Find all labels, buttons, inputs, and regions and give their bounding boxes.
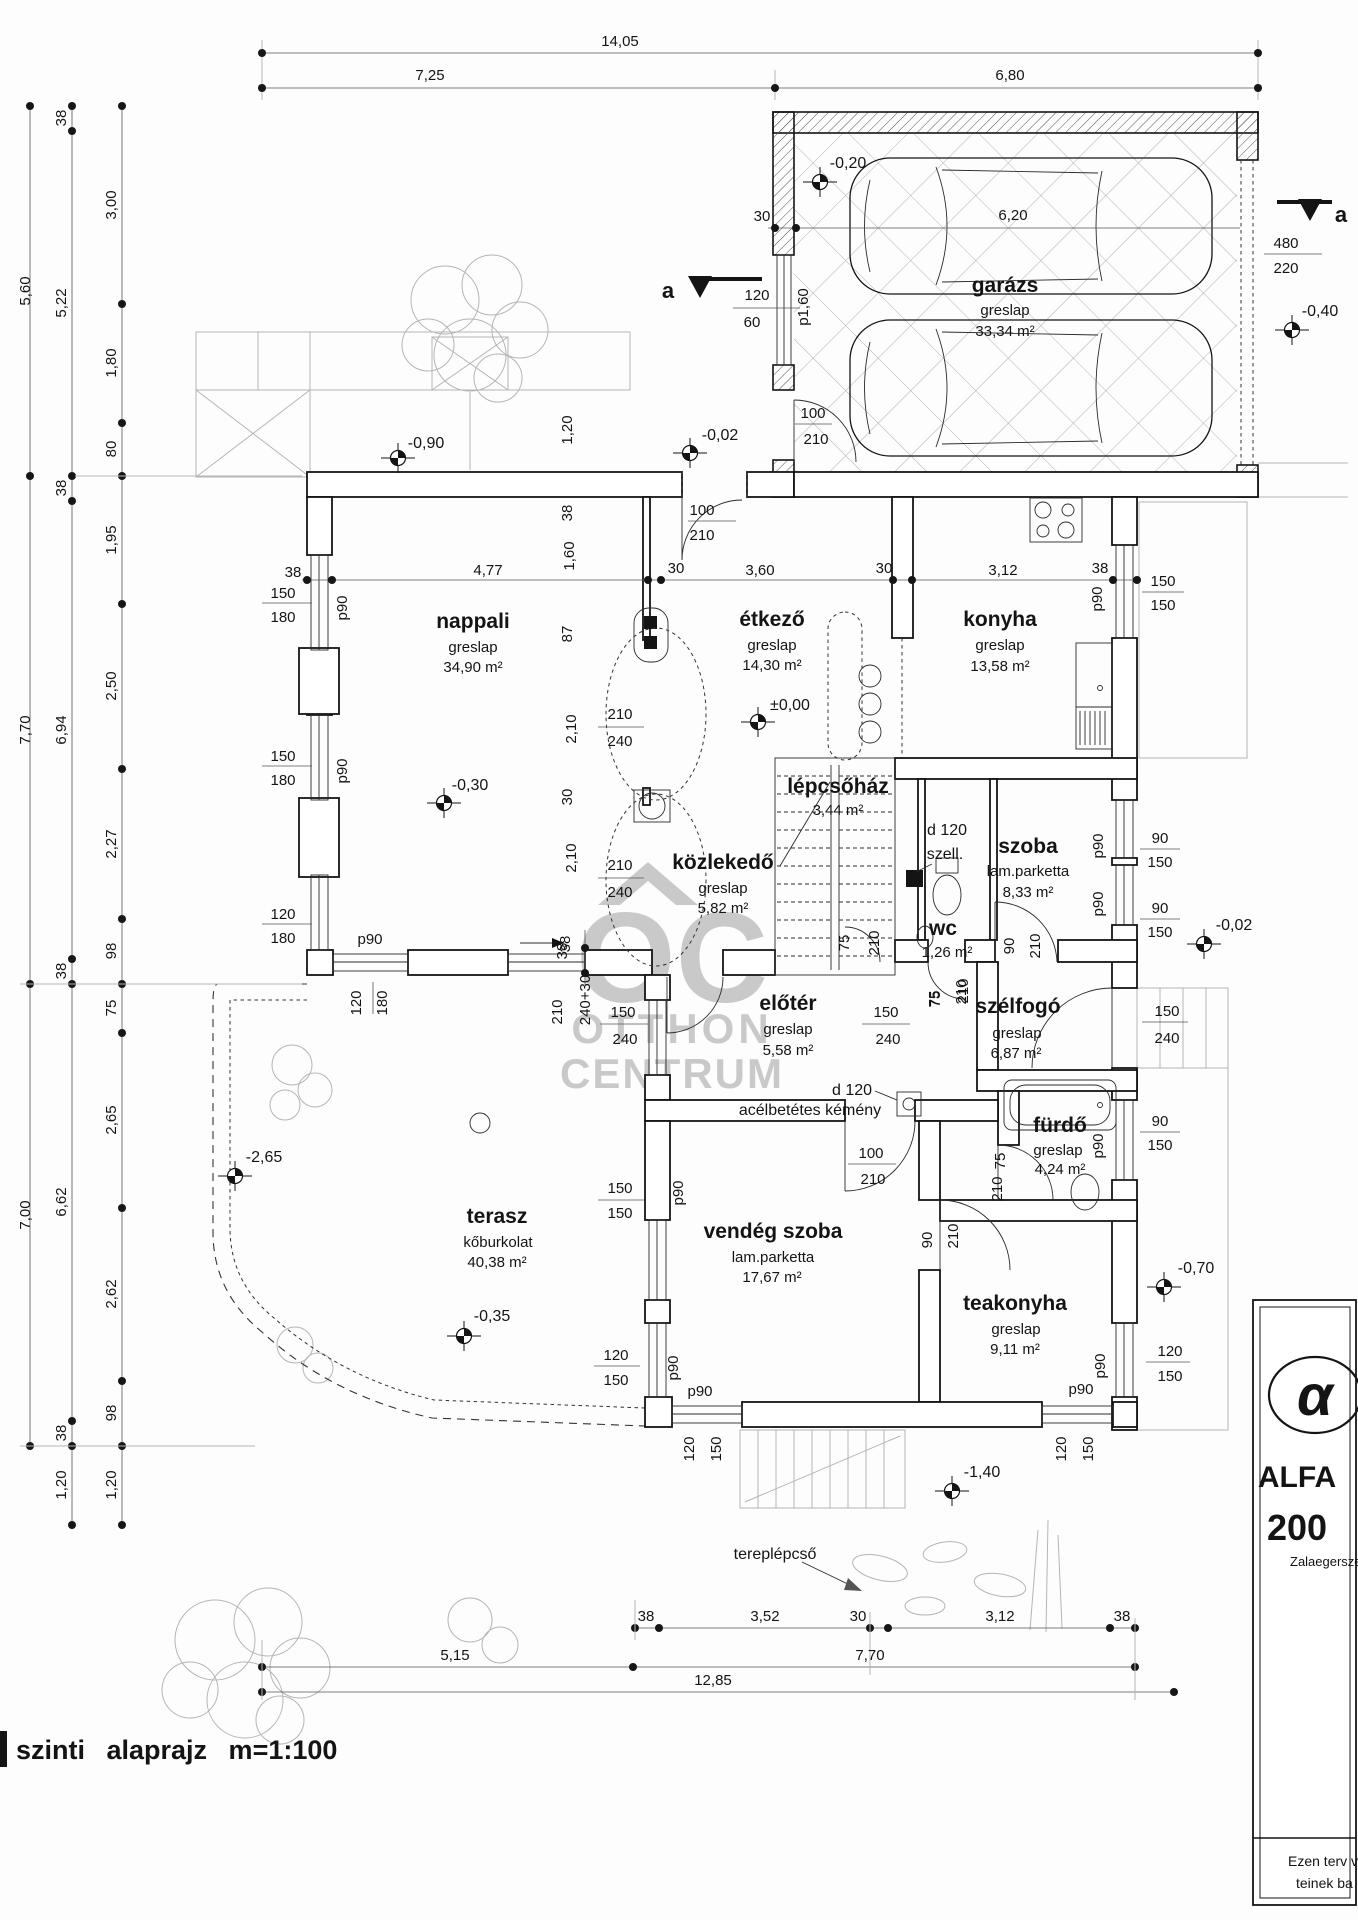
dim-label: 90 — [1001, 938, 1018, 955]
room-name: wc — [928, 917, 957, 940]
dim-label: 75 — [927, 991, 944, 1008]
page-title: szinti alaprajz m=1:100 — [0, 1731, 337, 1767]
dim-label: 4,77 — [473, 562, 502, 579]
section-marker-icon — [1298, 199, 1322, 221]
exterior-steps — [740, 1430, 905, 1508]
dim-label: 5,15 — [440, 1647, 469, 1664]
dim-label: 210 — [689, 527, 714, 544]
dim-label: 14,05 — [601, 33, 639, 50]
level-label: -0,70 — [1178, 1260, 1215, 1277]
level-label: -0,02 — [1216, 917, 1253, 934]
dim-label: 100 — [800, 405, 825, 422]
level-label: -0,40 — [1302, 303, 1339, 320]
dim-label: 2,27 — [103, 829, 120, 858]
dim-label: p90 — [670, 1180, 687, 1205]
dim-label: 30 — [754, 208, 771, 225]
dim-label: 75 — [103, 1000, 120, 1017]
room-area: 6,87 m² — [991, 1045, 1042, 1062]
dim-label: 150 — [607, 1180, 632, 1197]
dim-label: 1,20 — [103, 1470, 120, 1499]
room-floor: lam.parketta — [732, 1249, 815, 1266]
annotation: szell. — [927, 846, 963, 863]
section-label: a — [1335, 202, 1348, 227]
dim-label: 150 — [270, 585, 295, 602]
dim-label: 100 — [858, 1145, 883, 1162]
dim-label: 7,00 — [17, 1200, 34, 1229]
dim-label: 38 — [53, 963, 70, 980]
room-name: teakonyha — [963, 1292, 1067, 1315]
dim-label: 150 — [610, 1004, 635, 1021]
dim-label: 38 — [53, 1425, 70, 1442]
dim-label: 6,94 — [53, 715, 70, 744]
plan-title: szinti alaprajz m=1:100 — [16, 1735, 337, 1765]
room-floor: kőburkolat — [463, 1234, 533, 1251]
room-area: 4,24 m² — [1035, 1161, 1086, 1178]
dim-label: 150 — [1147, 924, 1172, 941]
company-city: Zalaegersze — [1290, 1554, 1358, 1569]
sink-icon — [1076, 643, 1112, 749]
dim-label: 240 — [1154, 1030, 1179, 1047]
annotation: acélbetétes kémény — [739, 1102, 881, 1119]
dim-label: p90 — [1089, 586, 1106, 611]
room-name: szoba — [998, 835, 1058, 858]
dim-label: 210 — [549, 999, 566, 1024]
note-line: Ezen terv v — [1288, 1853, 1358, 1869]
dim-label: 90 — [919, 1232, 936, 1249]
dim-label: 1,80 — [103, 348, 120, 377]
dim-label: 120 — [348, 990, 365, 1015]
room-area: 5,58 m² — [763, 1042, 814, 1059]
room-floor: greslap — [698, 880, 747, 897]
dim-label: 1,20 — [53, 1470, 70, 1499]
dim-label: 240 — [607, 884, 632, 901]
dim-label: 150 — [1150, 573, 1175, 590]
room-area: 8,33 m² — [1003, 884, 1054, 901]
room-name: konyha — [963, 608, 1037, 631]
dim-label: 6,62 — [53, 1187, 70, 1216]
dim-label: 87 — [559, 626, 576, 643]
dim-label: 1,60 — [561, 541, 578, 570]
bush-terasz — [270, 1045, 333, 1383]
level-label: ±0,00 — [770, 697, 810, 714]
room-area: 34,90 m² — [443, 659, 502, 676]
dim-label: 210 — [607, 857, 632, 874]
room-area: 3,44 m² — [813, 802, 864, 819]
dim-label: 38 — [1092, 560, 1109, 577]
dim-label: 210 — [860, 1171, 885, 1188]
room-name: fürdő — [1033, 1114, 1087, 1137]
room-name: garázs — [972, 274, 1039, 297]
dim-label: 150 — [603, 1372, 628, 1389]
dim-label: 38 — [53, 110, 70, 127]
dim-label: 30 — [668, 560, 685, 577]
dim-label: 120 — [744, 287, 769, 304]
dim-label: 210 — [955, 978, 972, 1003]
dim-label: 75 — [836, 935, 853, 952]
dim-label: 150 — [1080, 1436, 1097, 1461]
dim-label: 150 — [873, 1004, 898, 1021]
level-label: -0,30 — [452, 777, 489, 794]
level-label: -0,90 — [408, 435, 445, 452]
dim-label: 2,65 — [103, 1105, 120, 1134]
title-block: α ALFA 200 Zalaegersze Ezen terv v teine… — [1253, 1300, 1358, 1905]
dim-label: 120 — [603, 1347, 628, 1364]
dim-label: 210 — [945, 1223, 962, 1248]
section-label: a — [662, 278, 675, 303]
dim-label: 5,60 — [17, 276, 34, 305]
fireplace-icon — [634, 608, 668, 662]
dim-label: 6,20 — [998, 207, 1027, 224]
room-floor: greslap — [975, 637, 1024, 654]
dim-label: p90 — [357, 931, 382, 948]
dim-label: 30 — [559, 789, 576, 806]
dim-label: 80 — [103, 441, 120, 458]
dim-label: 2,10 — [563, 843, 580, 872]
dim-label: 240+30 — [577, 975, 594, 1025]
company-logo-glyph: α — [1297, 1363, 1335, 1428]
level-marker-icon — [1147, 1272, 1181, 1302]
dim-label: 220 — [1273, 260, 1298, 277]
dim-label: 75 — [992, 1153, 1009, 1170]
room-area: 14,30 m² — [742, 657, 801, 674]
dim-label: 3,12 — [985, 1608, 1014, 1625]
floor-plan-page: OC OTTHON CENTRUM — [0, 0, 1358, 1920]
dim-label: 98 — [103, 1405, 120, 1422]
annotation: tereplépcső — [734, 1546, 817, 1563]
dim-label: p90 — [1090, 891, 1107, 916]
dim-label: 150 — [1150, 597, 1175, 614]
dim-label: 6,80 — [995, 67, 1024, 84]
dim-label: 210 — [803, 431, 828, 448]
room-area: 40,38 m² — [467, 1254, 526, 1271]
room-floor: lam.parketta — [987, 863, 1070, 880]
dim-label: 180 — [270, 609, 295, 626]
dim-label: p90 — [1092, 1353, 1109, 1378]
stove-icon — [1030, 498, 1082, 542]
dim-label: 60 — [744, 314, 761, 331]
room-name: nappali — [436, 610, 510, 633]
dim-label: 12,85 — [694, 1672, 732, 1689]
room-area: 17,67 m² — [742, 1269, 801, 1286]
dim-label: 120 — [270, 906, 295, 923]
dim-label: 240 — [875, 1031, 900, 1048]
dim-label: 480 — [1273, 235, 1298, 252]
dim-label: 210 — [989, 1176, 1006, 1201]
room-name: terasz — [467, 1205, 528, 1228]
dim-label: 90 — [1152, 830, 1169, 847]
section-marker-icon — [688, 276, 712, 298]
dim-label: 7,25 — [415, 67, 444, 84]
level-label: -0,35 — [474, 1308, 511, 1325]
level-label: -0,02 — [702, 427, 739, 444]
dim-label: p90 — [665, 1355, 682, 1380]
dim-label: p90 — [334, 758, 351, 783]
dim-label: 120 — [681, 1436, 698, 1461]
level-label: -2,65 — [246, 1149, 283, 1166]
room-name: lépcsőház — [787, 775, 889, 798]
dim-label: 1,95 — [103, 525, 120, 554]
dim-label: 98 — [103, 943, 120, 960]
dim-label: p1,60 — [795, 288, 812, 326]
dim-label: 2,10 — [563, 714, 580, 743]
dim-label: 90 — [1152, 1113, 1169, 1130]
room-area: 5,82 m² — [698, 900, 749, 917]
dim-label: 120 — [1157, 1343, 1182, 1360]
room-floor: greslap — [980, 302, 1029, 319]
annotation: d 120 — [832, 1082, 872, 1099]
dim-label: 1,20 — [559, 415, 576, 444]
dim-label: 210 — [866, 930, 883, 955]
room-floor: greslap — [1033, 1142, 1082, 1159]
dim-label: 5,22 — [53, 288, 70, 317]
room-name: előtér — [759, 992, 816, 1015]
room-area: 9,11 m² — [990, 1341, 1040, 1358]
dim-label: 3,00 — [103, 190, 120, 219]
dim-label: 210 — [607, 706, 632, 723]
dim-label: 38 — [638, 1608, 655, 1625]
dim-label: 150 — [1147, 1137, 1172, 1154]
dim-label: 150 — [270, 748, 295, 765]
watermark-line1: OTTHON — [571, 1005, 772, 1052]
dim-label: 38 — [53, 480, 70, 497]
dim-label: 7,70 — [17, 715, 34, 744]
dim-label: 30 — [876, 560, 893, 577]
room-floor: greslap — [992, 1025, 1041, 1042]
room-name: szélfogó — [975, 995, 1060, 1018]
dim-label: 2,50 — [103, 671, 120, 700]
room-area: 13,58 m² — [970, 658, 1029, 675]
dim-label: 30 — [850, 1608, 867, 1625]
dim-label: 150 — [1157, 1368, 1182, 1385]
room-name: étkező — [739, 608, 804, 631]
dim-label: 2,62 — [103, 1279, 120, 1308]
dim-label: 180 — [270, 930, 295, 947]
dim-label: 3,60 — [745, 562, 774, 579]
room-floor: greslap — [747, 637, 796, 654]
dim-label: 38 — [1114, 1608, 1131, 1625]
tree-bottom — [162, 1588, 518, 1744]
dim-label: 150 — [1154, 1003, 1179, 1020]
dim-label: 100 — [689, 502, 714, 519]
level-label: -0,20 — [830, 155, 867, 172]
dim-label: 180 — [270, 772, 295, 789]
dim-label: p90 — [687, 1383, 712, 1400]
company-name: ALFA — [1258, 1461, 1336, 1494]
dim-label: 3,12 — [988, 562, 1017, 579]
dim-label: 240 — [612, 1031, 637, 1048]
company-name-2: 200 — [1267, 1507, 1327, 1548]
watermark-line2: CENTRUM — [560, 1050, 784, 1097]
annotation: d 120 — [927, 822, 967, 839]
dim-label: 38 — [559, 505, 576, 522]
dim-label: 7,70 — [855, 1647, 884, 1664]
room-floor: greslap — [763, 1021, 812, 1038]
level-label: -1,40 — [964, 1464, 1001, 1481]
level-marker-icon — [447, 1321, 481, 1351]
stones — [850, 1520, 1062, 1632]
dim-label: 3,52 — [750, 1608, 779, 1625]
dim-label: 150 — [1147, 854, 1172, 871]
dim-label: 240 — [607, 733, 632, 750]
dim-label: 38 — [285, 564, 302, 581]
dim-label: 120 — [1053, 1436, 1070, 1461]
vent-icon — [906, 870, 923, 887]
dim-label: 180 — [374, 990, 391, 1015]
dim-label: 90 — [1152, 900, 1169, 917]
dim-label: 150 — [708, 1436, 725, 1461]
room-name: közlekedő — [672, 851, 774, 874]
dim-label: p90 — [334, 595, 351, 620]
dim-label: p90 — [1090, 1133, 1107, 1158]
dim-label: p90 — [1090, 833, 1107, 858]
dim-label: 150 — [607, 1205, 632, 1222]
note-line: teinek ba — [1296, 1875, 1353, 1891]
floor-plan-drawing: OC OTTHON CENTRUM — [0, 0, 1358, 1920]
dim-label: 38 — [554, 943, 571, 960]
room-name: vendég szoba — [704, 1220, 843, 1243]
room-area: 33,34 m² — [975, 323, 1034, 340]
room-area: 1,26 m² — [922, 944, 973, 961]
dim-label: p90 — [1068, 1381, 1093, 1398]
dim-label: 210 — [1027, 933, 1044, 958]
room-floor: greslap — [448, 639, 497, 656]
room-floor: greslap — [991, 1321, 1040, 1338]
